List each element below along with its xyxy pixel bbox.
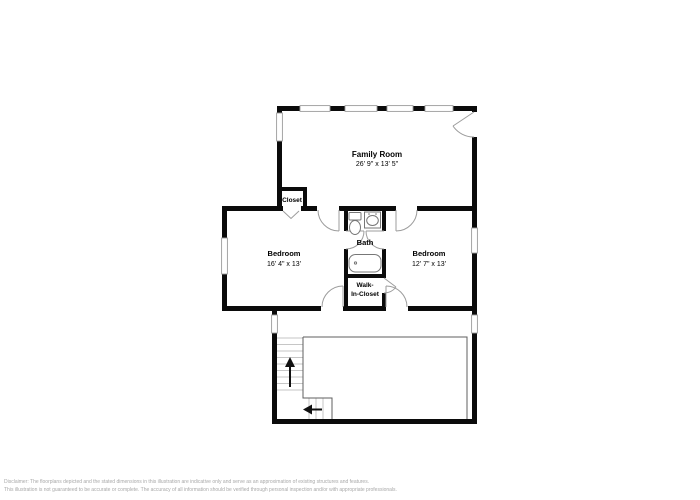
stair-up-arrow-icon [285, 357, 295, 387]
door-bedroom-right-top [396, 210, 417, 231]
floorplan-drawing [0, 0, 700, 500]
room-name-line1: Walk- [335, 282, 395, 291]
stair-treads [277, 338, 323, 419]
disclaimer-line-2: This illustration is not guaranteed to b… [4, 486, 397, 494]
window [345, 106, 377, 112]
room-name: Bath [335, 238, 395, 249]
window [222, 238, 228, 274]
stair-void-outline [303, 337, 467, 419]
disclaimer: Disclaimer: The floorplans depicted and … [4, 478, 397, 494]
door-family-room-entry [453, 112, 474, 137]
room-dimensions: 12' 7" x 13' [379, 260, 479, 270]
toilet-icon [349, 213, 361, 235]
room-dimensions: 16' 4" x 13' [234, 260, 334, 270]
staircase [277, 337, 467, 419]
window [277, 113, 283, 141]
window [425, 106, 453, 112]
window [300, 106, 330, 112]
closet-label: Closet [272, 197, 312, 206]
window [472, 315, 478, 333]
room-name: Bedroom [234, 249, 334, 260]
room-dimensions: 26' 9" x 13' 5" [317, 160, 437, 170]
door-bedroom-left-top [318, 210, 339, 231]
bedroom-right-label: Bedroom 12' 7" x 13' [379, 249, 479, 269]
bathtub-icon [349, 255, 381, 273]
room-name: Closet [272, 197, 312, 206]
stair-down-arrow-icon [303, 405, 322, 415]
family-room-label: Family Room 26' 9" x 13' 5" [317, 149, 437, 170]
room-name: Family Room [317, 149, 437, 160]
room-name: Bedroom [379, 249, 479, 260]
closet-bifold-door [283, 211, 299, 219]
bedroom-left-label: Bedroom 16' 4" x 13' [234, 249, 334, 269]
walk-in-closet-label: Walk- In-Closet [335, 282, 395, 300]
window [272, 315, 278, 333]
sink-icon [365, 212, 381, 228]
room-name-line2: In-Closet [335, 291, 395, 300]
window [387, 106, 413, 112]
bath-label: Bath [335, 238, 395, 249]
floorplan-canvas: Family Room 26' 9" x 13' 5" Closet Bedro… [0, 0, 700, 500]
disclaimer-line-1: Disclaimer: The floorplans depicted and … [4, 478, 397, 486]
